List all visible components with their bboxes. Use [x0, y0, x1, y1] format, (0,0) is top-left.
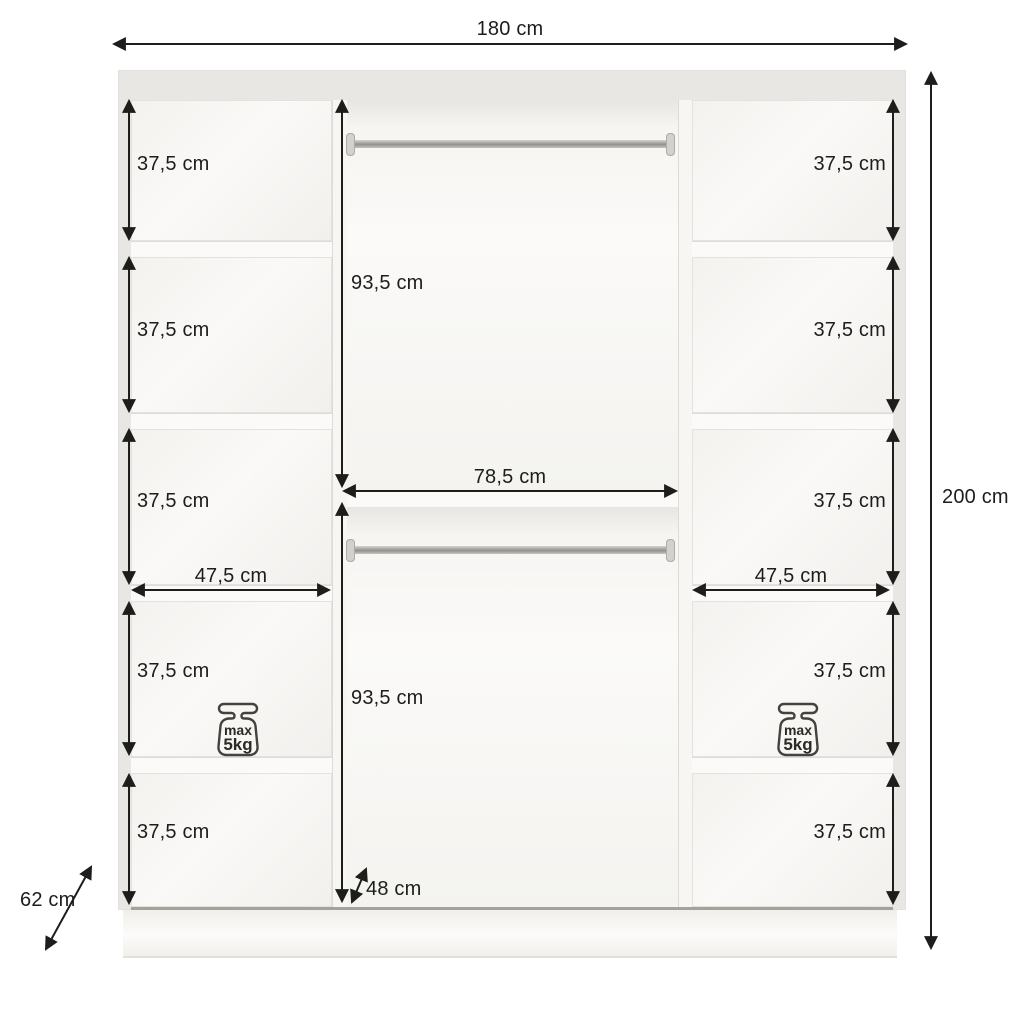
dim-label-overall-height: 200 cm [942, 485, 1009, 509]
max-load-icon-left: max 5kg [214, 702, 262, 757]
dim-label-middle-width: 78,5 cm [430, 465, 590, 489]
max-load-text-line2: 5kg [223, 735, 252, 754]
plinth-base [123, 910, 897, 958]
dim-label-hang-bottom-height: 93,5 cm [351, 686, 424, 710]
dim-label-left-comp-2: 37,5 cm [137, 318, 210, 342]
dim-label-left-comp-3: 37,5 cm [137, 489, 210, 513]
hanging-section-top [347, 100, 678, 490]
dim-label-right-comp-1: 37,5 cm [746, 152, 886, 176]
dim-label-left-comp-4: 37,5 cm [137, 659, 210, 683]
dim-label-right-comp-5: 37,5 cm [746, 820, 886, 844]
dim-label-hang-top-height: 93,5 cm [351, 271, 424, 295]
dim-label-right-comp-3: 37,5 cm [746, 489, 886, 513]
rail-cap-bottom-right [666, 539, 675, 562]
dim-label-overall-width: 180 cm [430, 17, 590, 41]
rail-cap-top-left [346, 133, 355, 156]
rail-cap-top-right [666, 133, 675, 156]
dim-label-right-comp-4: 37,5 cm [746, 659, 886, 683]
dim-label-left-comp-1: 37,5 cm [137, 152, 210, 176]
clothes-rail-bottom [350, 546, 670, 554]
max-load-icon-right: max 5kg [774, 702, 822, 757]
wardrobe-dimension-diagram: max 5kg max 5kg [0, 0, 1024, 1024]
max-load-text-line2: 5kg [783, 735, 812, 754]
dim-label-right-width: 47,5 cm [711, 564, 871, 588]
dim-label-middle-bottom-width: 48 cm [366, 877, 421, 901]
dim-label-left-width: 47,5 cm [151, 564, 311, 588]
rail-cap-bottom-left [346, 539, 355, 562]
dim-label-right-comp-2: 37,5 cm [746, 318, 886, 342]
clothes-rail-top [350, 140, 670, 148]
dim-label-depth: 62 cm [20, 888, 75, 912]
dim-label-left-comp-5: 37,5 cm [137, 820, 210, 844]
